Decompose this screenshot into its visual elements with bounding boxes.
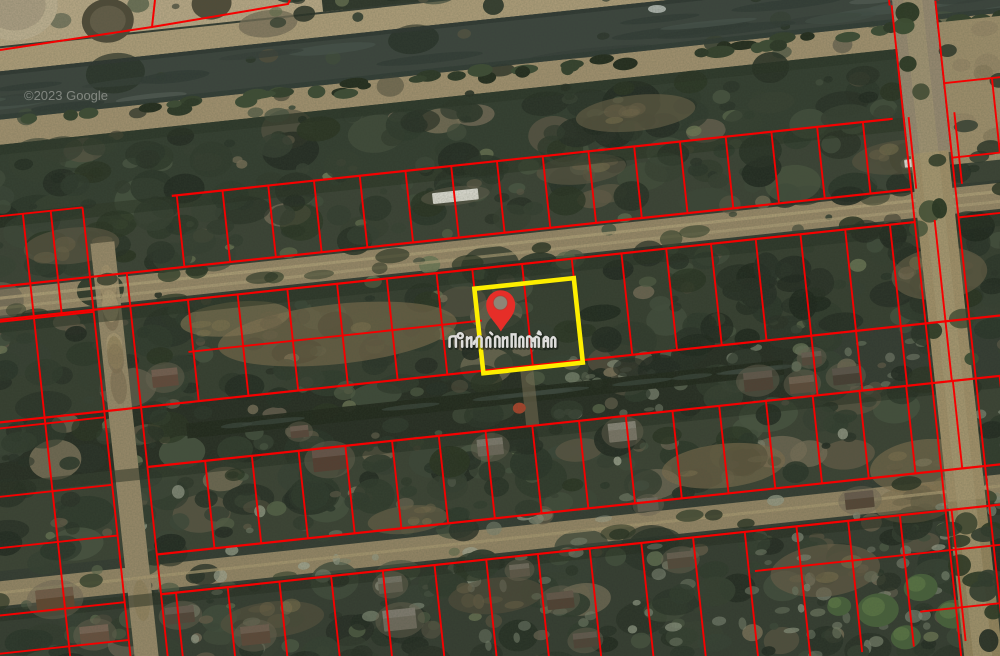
svg-text:©2023 Google: ©2023 Google xyxy=(24,88,108,103)
